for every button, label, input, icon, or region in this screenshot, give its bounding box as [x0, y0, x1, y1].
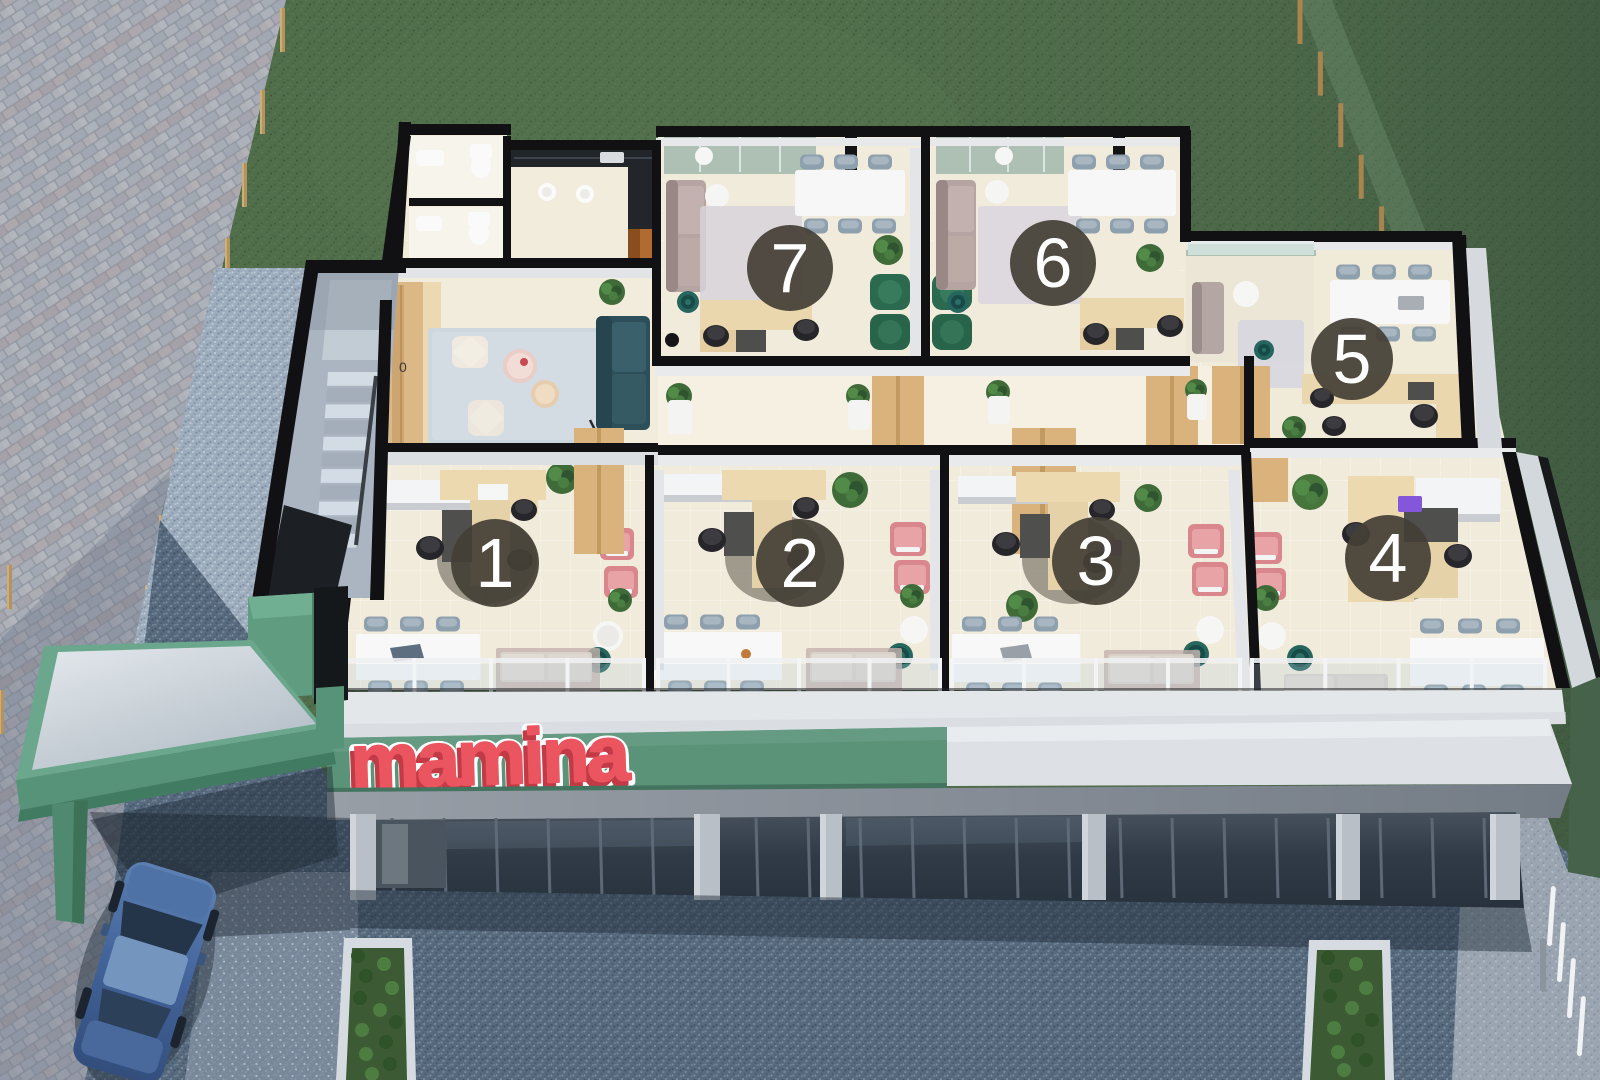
svg-text:6: 6: [1034, 224, 1073, 302]
svg-text:7: 7: [771, 229, 810, 307]
svg-text:5: 5: [1333, 320, 1372, 398]
svg-text:0: 0: [399, 359, 407, 375]
svg-text:4: 4: [1369, 519, 1408, 597]
svg-text:3: 3: [1077, 522, 1116, 600]
svg-text:2: 2: [781, 524, 820, 602]
svg-text:1: 1: [476, 524, 515, 602]
